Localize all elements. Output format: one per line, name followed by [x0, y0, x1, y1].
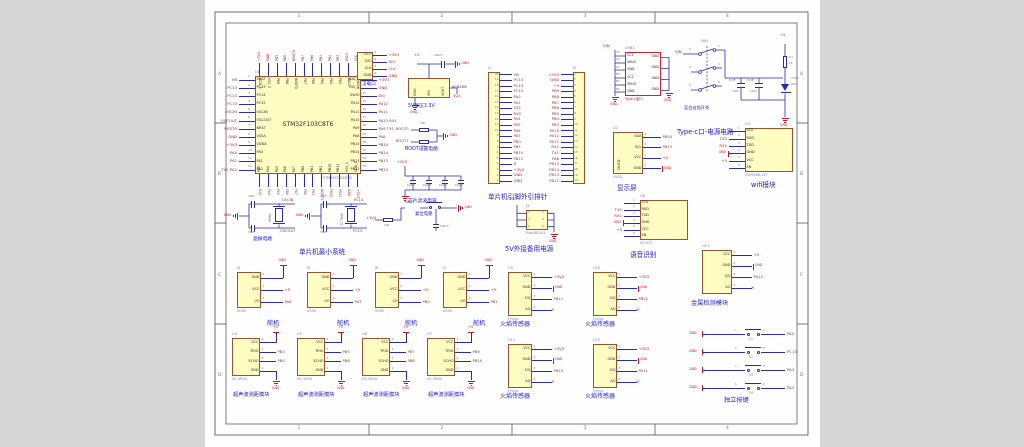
schematic-page: U1STM32F103C8T6STM32F103C8T6VBAT1VBPC132… [205, 0, 820, 447]
pin-name: GND [595, 358, 616, 362]
pin-name: DQ [510, 369, 531, 373]
pin-name: TXD [642, 214, 687, 218]
vertical-pin-name: VOUT [442, 87, 445, 96]
gnd-symbol [237, 213, 238, 220]
wire-segment [617, 288, 637, 289]
value-label: 100nF [434, 54, 443, 57]
crystal-plate [345, 206, 357, 207]
value-label: 100nF [439, 185, 447, 188]
wire-segment [761, 334, 785, 335]
pin-number: 4 [262, 338, 264, 341]
value-label: 30pF [320, 195, 327, 198]
net-label: GND [514, 179, 523, 183]
wire-segment [500, 108, 512, 109]
pin-number: 3 [327, 348, 329, 351]
pin-number: 2 [262, 357, 264, 360]
wire-segment [361, 137, 377, 138]
pin-number: 11 [574, 129, 584, 132]
wire-segment [561, 108, 573, 109]
pin-number: 2 [489, 174, 499, 177]
net-label: +5 [285, 288, 291, 292]
part-name: SU-03T [640, 242, 652, 245]
pin-number: B4 [616, 80, 620, 83]
wire-segment [471, 371, 472, 380]
no-connect-x: ✕ [636, 308, 640, 312]
wire-segment [500, 142, 512, 143]
gnd-symbol [307, 214, 308, 218]
pin-number: 7 [248, 124, 250, 127]
part-name: HC-SR04 [297, 378, 312, 381]
pin-name: PA7 [293, 166, 296, 172]
net-label: PB14 [379, 151, 389, 155]
pin-name: PB0 [302, 166, 305, 172]
gnd-symbol [233, 215, 234, 217]
wire-segment [561, 91, 573, 92]
gnd-symbol [783, 120, 787, 121]
pin-number: 18 [574, 168, 584, 171]
net-label: VB [514, 73, 519, 77]
wire-segment [399, 278, 421, 279]
section-title: 独立按键 [724, 398, 749, 404]
net-label: PB1 [311, 189, 314, 195]
gnd-symbol [462, 207, 463, 209]
cap-polarized-symbol [755, 87, 763, 88]
pin-name: VSS_2 [257, 86, 360, 90]
capacitor-symbol [326, 201, 327, 208]
net-label: +3V3 [216, 143, 237, 147]
wire-segment [500, 97, 512, 98]
value-label: +3V3 [397, 161, 407, 165]
net-label: +3V3 [554, 275, 565, 279]
pin-number: 2 [763, 383, 765, 386]
pin-number: 1 [528, 211, 530, 214]
pin-number: 4 [619, 378, 621, 381]
pin-name: PB3 [338, 78, 341, 84]
wire-segment [406, 333, 407, 343]
wire-segment [373, 62, 387, 63]
pin-name: AQ [595, 308, 616, 312]
value-label: 1 [718, 45, 720, 48]
wire-segment [276, 371, 277, 380]
pin-name: VCC [309, 288, 330, 292]
pin-number: 1 [375, 51, 377, 54]
ref-designator: U8 [640, 195, 645, 199]
wire-segment [624, 203, 640, 204]
value-label: R1 [789, 56, 793, 59]
zone-number: 4 [726, 427, 729, 432]
pin-name: PB11 [337, 164, 340, 172]
gnd-symbol [457, 62, 458, 66]
wire-segment [455, 361, 471, 362]
wire-segment [239, 104, 255, 105]
net-label: +5 [601, 228, 622, 232]
wire-segment [339, 63, 340, 76]
wire-segment [361, 104, 377, 105]
gnd-net-label: GND [402, 387, 409, 390]
net-label: +3V3 [639, 275, 650, 279]
pin-number: 10 [489, 129, 499, 132]
pin-name: VCC [615, 156, 642, 160]
button-symbol[interactable] [745, 365, 761, 366]
resistor-symbol [783, 56, 787, 68]
net-label: PA12 [379, 102, 388, 106]
pin-number: 6 [574, 101, 584, 104]
zone-letter: A [800, 73, 803, 78]
pin-name: PA4 [267, 166, 270, 172]
net-label: PB1 [514, 145, 521, 149]
capacitor-symbol [410, 180, 416, 181]
pin-number: 4 [645, 133, 647, 136]
gnd-symbol [339, 383, 343, 384]
pin-name: TRIG [299, 350, 324, 354]
gnd-symbol [403, 381, 410, 382]
section-title: 语音识别 [630, 252, 656, 259]
button-contact [747, 333, 750, 336]
section-title: 火焰传感器 [500, 322, 530, 328]
crystal-plate [273, 206, 285, 207]
wire-segment [643, 168, 661, 169]
wire-segment [561, 114, 573, 115]
gnd-net-label: GND [279, 259, 286, 262]
wire-segment [406, 371, 407, 380]
pin-name: VCC [642, 228, 687, 232]
wire-segment [703, 388, 745, 389]
part-name: SG90 [443, 310, 452, 313]
wire-segment [239, 137, 255, 138]
pin-number: 9 [248, 141, 250, 144]
pin-name: VCC [239, 288, 260, 292]
pin-name: GND [641, 66, 659, 69]
net-label: PB7 [302, 55, 305, 61]
pin-name: SWIO [257, 94, 360, 98]
wire-segment [330, 174, 331, 187]
ref-designator: U10 [593, 267, 600, 271]
pin-number: 3 [619, 295, 621, 298]
zone-number: 1 [298, 427, 301, 432]
section-title: 单片机最小系统 [299, 249, 345, 256]
wire-segment [500, 130, 512, 131]
pin-number: 13 [489, 112, 499, 115]
pin-name: RXD [747, 137, 792, 141]
pin-number: 2 [763, 329, 765, 332]
pin-name: VCC [445, 288, 466, 292]
gnd-symbol [666, 93, 673, 94]
wire-segment [561, 119, 573, 120]
pin-name: PB7 [302, 78, 305, 84]
net-label: TX2 [706, 137, 727, 141]
net-label: PB4 [538, 117, 559, 121]
wire-segment [373, 55, 387, 56]
button-contact [757, 387, 760, 390]
gnd-symbol [552, 236, 556, 237]
value-label: EC1 [729, 79, 735, 82]
pin-number: 4 [738, 149, 740, 152]
pin-number: 5 [248, 108, 250, 111]
net-label: PA8 [538, 157, 559, 161]
wire-segment [283, 266, 284, 278]
net-label: PC13 [787, 350, 797, 354]
net-label: PB13 [663, 145, 673, 149]
pin-number: 16 [489, 95, 499, 98]
pin-number: 2 [763, 365, 765, 368]
net-label: NRSTR [216, 127, 237, 131]
wire-segment [455, 371, 471, 372]
part-name: HC-SR04 [427, 378, 442, 381]
pin-number: 1 [574, 73, 584, 76]
section-title: 超声波测距模块 [363, 393, 399, 398]
pin-number: 34 [363, 92, 367, 95]
wire-segment [341, 333, 342, 343]
pin-name: VSS_3 [267, 78, 270, 88]
pin-name: GND [364, 369, 389, 373]
wire-segment [561, 130, 573, 131]
capacitor-symbol [458, 180, 464, 181]
pin-name: DIO [359, 60, 372, 64]
pin-number: 1 [262, 367, 264, 370]
pin-number: 2 [574, 78, 584, 81]
gnd-symbol [273, 332, 279, 333]
pin-number: 8 [248, 133, 250, 136]
pin-name: DQ [510, 297, 531, 301]
pin-name: TRIG [234, 350, 259, 354]
net-label: PB10 [473, 359, 483, 363]
net-label: PA5 [514, 123, 521, 127]
schematic-canvas: U1STM32F103C8T6STM32F103C8T6VBAT1VBPC132… [205, 0, 820, 447]
wire-segment [643, 147, 661, 148]
wire-segment [617, 349, 637, 350]
pin-name: PB15 [257, 143, 360, 147]
net-label: PA10 RX1 [379, 119, 397, 123]
wire-segment [617, 299, 637, 300]
pin-number: 20 [489, 73, 499, 76]
net-label: PA7 [355, 300, 362, 304]
value-label: 3V3 [453, 95, 460, 99]
wire-segment [729, 139, 745, 140]
cap-polarized-symbol [737, 83, 745, 84]
value-label: 100nF [407, 185, 415, 188]
pin-number: 1 [633, 199, 635, 202]
wire-segment [532, 382, 552, 383]
wire-segment [561, 125, 573, 126]
crystal-symbol [347, 208, 355, 222]
wire-segment [260, 352, 276, 353]
pin-number: 1 [401, 273, 403, 276]
pin-number: 4 [375, 72, 377, 75]
pin-name: AO [704, 286, 731, 290]
net-label: PB6 [343, 359, 350, 363]
wire-segment [561, 97, 573, 98]
pin-number: 1 [392, 367, 394, 370]
net-label: R [514, 162, 517, 166]
wire-segment [617, 310, 637, 311]
gnd-symbol [280, 265, 287, 266]
pin-number: 6 [489, 151, 499, 154]
gnd-symbol [404, 383, 408, 384]
ref-designator: U12 [593, 339, 600, 343]
button-contact [747, 369, 750, 372]
ref-designator: USB1 [625, 47, 635, 51]
pin-name: GND [595, 286, 616, 290]
wire-segment [561, 164, 573, 165]
net-label: RX2 [514, 112, 522, 116]
net-label: GND [538, 78, 559, 82]
pin-name: SCL [615, 146, 642, 150]
wire-segment [312, 174, 313, 187]
button-symbol[interactable] [745, 383, 761, 384]
pin-number: 3 [574, 84, 584, 87]
pin-number: 4 [574, 90, 584, 93]
pin-number: 5 [633, 225, 635, 228]
wire-segment [500, 125, 512, 126]
pin-number: 10 [248, 149, 252, 152]
net-label: PA9 TX1 [379, 127, 395, 131]
wire-segment [561, 170, 573, 171]
pin-name: PB2 [320, 166, 323, 172]
pin-number: 1 [735, 365, 737, 368]
ref-designator: U13 [702, 245, 709, 249]
part-name: OLED [613, 176, 622, 179]
section-title: 金属检测模块 [691, 301, 728, 307]
pin-name: VCC [359, 53, 372, 57]
gnd-net-label: GND [664, 167, 671, 170]
gnd-symbol [274, 383, 278, 384]
pin-name: PB6 [311, 78, 314, 84]
wire-segment [260, 342, 276, 343]
pin-number: 12 [248, 165, 252, 168]
gnd-net-label: GND [555, 286, 562, 289]
pin-number: 3 [534, 367, 536, 370]
value-label: +5 [414, 54, 419, 58]
button-symbol[interactable] [745, 329, 761, 330]
net-label: RX1 [538, 145, 559, 149]
net-label: PB13 [538, 173, 559, 177]
zone-number: 1 [298, 15, 301, 20]
wire-segment [500, 170, 512, 171]
pin-name: GND [429, 369, 454, 373]
pin-number: 19 [489, 78, 499, 81]
pin-number: 32 [363, 108, 367, 111]
wire-segment [761, 352, 785, 353]
ref-designator: J4 [237, 267, 240, 271]
capacitor-symbol [254, 201, 255, 208]
pin-name: CC2 [627, 76, 634, 79]
net-label: PA0 [514, 95, 521, 99]
part-name: Type-c接口 [625, 98, 643, 101]
wire-segment [732, 266, 752, 267]
vertical-pin-name: GND [414, 88, 417, 96]
value-label: 10K [384, 224, 389, 227]
pin-number: 2 [457, 357, 459, 360]
net-label: PA7 [514, 134, 521, 138]
wire-segment [373, 76, 387, 77]
gnd-net-label: GND [467, 387, 474, 390]
gnd-net-label: GND [349, 259, 356, 262]
pin-name: VBUS [627, 61, 636, 64]
pin-number: 3 [528, 218, 530, 221]
value-label: +5 [509, 198, 514, 202]
gnd-symbol [455, 61, 456, 68]
pin-number: 1 [619, 345, 621, 348]
net-label: PB5 [343, 350, 350, 354]
pin-name: PA8 [257, 135, 360, 139]
wire-segment [500, 164, 512, 165]
gnd-label: GND [689, 350, 697, 353]
value-label: 1K [789, 62, 793, 65]
section-title: 舵机 [267, 321, 279, 327]
wire-segment [361, 129, 377, 130]
net-label: PB3 [278, 350, 285, 354]
gnd-label: GND [549, 240, 556, 243]
section-title: 单片机引脚外引排针 [488, 194, 547, 201]
section-title: 超声波测距模块 [298, 393, 334, 398]
pin-number: 2 [534, 284, 536, 287]
pin-name: VDD_2 [257, 78, 360, 82]
net-label: PB9 [473, 350, 480, 354]
pin-name: GND [641, 77, 659, 80]
wire-segment [729, 161, 745, 162]
wire-segment [361, 170, 377, 171]
button-symbol[interactable] [745, 347, 761, 348]
net-label: PA15 [538, 129, 559, 133]
pin-name: SDA [615, 135, 642, 139]
pin-number: 1 [327, 367, 329, 370]
pin-name: TXD [747, 144, 792, 148]
wire-segment [561, 102, 573, 103]
wire-segment [239, 88, 255, 89]
zone-number: 4 [726, 15, 729, 20]
value-label: BOOT1 [396, 140, 409, 144]
wire-segment [467, 290, 489, 291]
value-label: SW1 [701, 40, 709, 43]
wire-segment [325, 342, 341, 343]
wire-segment [617, 371, 637, 372]
net-label: GND [216, 135, 237, 139]
section-title: 晶振电路 [253, 238, 272, 243]
button-contact [747, 387, 750, 390]
wire-segment [732, 277, 752, 278]
net-label: PA6 [514, 129, 521, 133]
pin-name: GND [627, 68, 635, 71]
net-label: VB [216, 78, 237, 82]
pin-name: EN [642, 234, 687, 238]
net-label: RX2 [706, 144, 727, 148]
wire-segment [304, 174, 305, 187]
capacitor-symbol [426, 180, 432, 181]
section-title: 复位电路 [415, 213, 433, 217]
pin-name: I/O [377, 300, 398, 304]
net-label: PB3 [337, 55, 340, 61]
pin-name: VCC [747, 159, 792, 163]
ref-designator: S1 [749, 338, 753, 341]
pin-name: VCC [595, 275, 616, 279]
pin-number: 2 [375, 58, 377, 61]
pin-number: 12 [489, 118, 499, 121]
pin-number: 5 [528, 225, 530, 228]
pin-name: I/O [445, 300, 466, 304]
net-label: PB11 [554, 297, 564, 301]
pin-name: I/O [239, 300, 260, 304]
wire-segment [643, 158, 661, 159]
pin-number: 1 [619, 273, 621, 276]
pin-name: PB9 [276, 78, 279, 84]
net-label: PA12 [754, 275, 763, 279]
section-title: 火焰传感器 [585, 394, 615, 400]
net-label: +3V3 [538, 73, 559, 77]
gnd-label: GND [220, 214, 231, 217]
gnd-net-label: GND [417, 259, 424, 262]
pin-number: 5 [489, 157, 499, 160]
pin-name: BOOT0 [294, 78, 297, 89]
